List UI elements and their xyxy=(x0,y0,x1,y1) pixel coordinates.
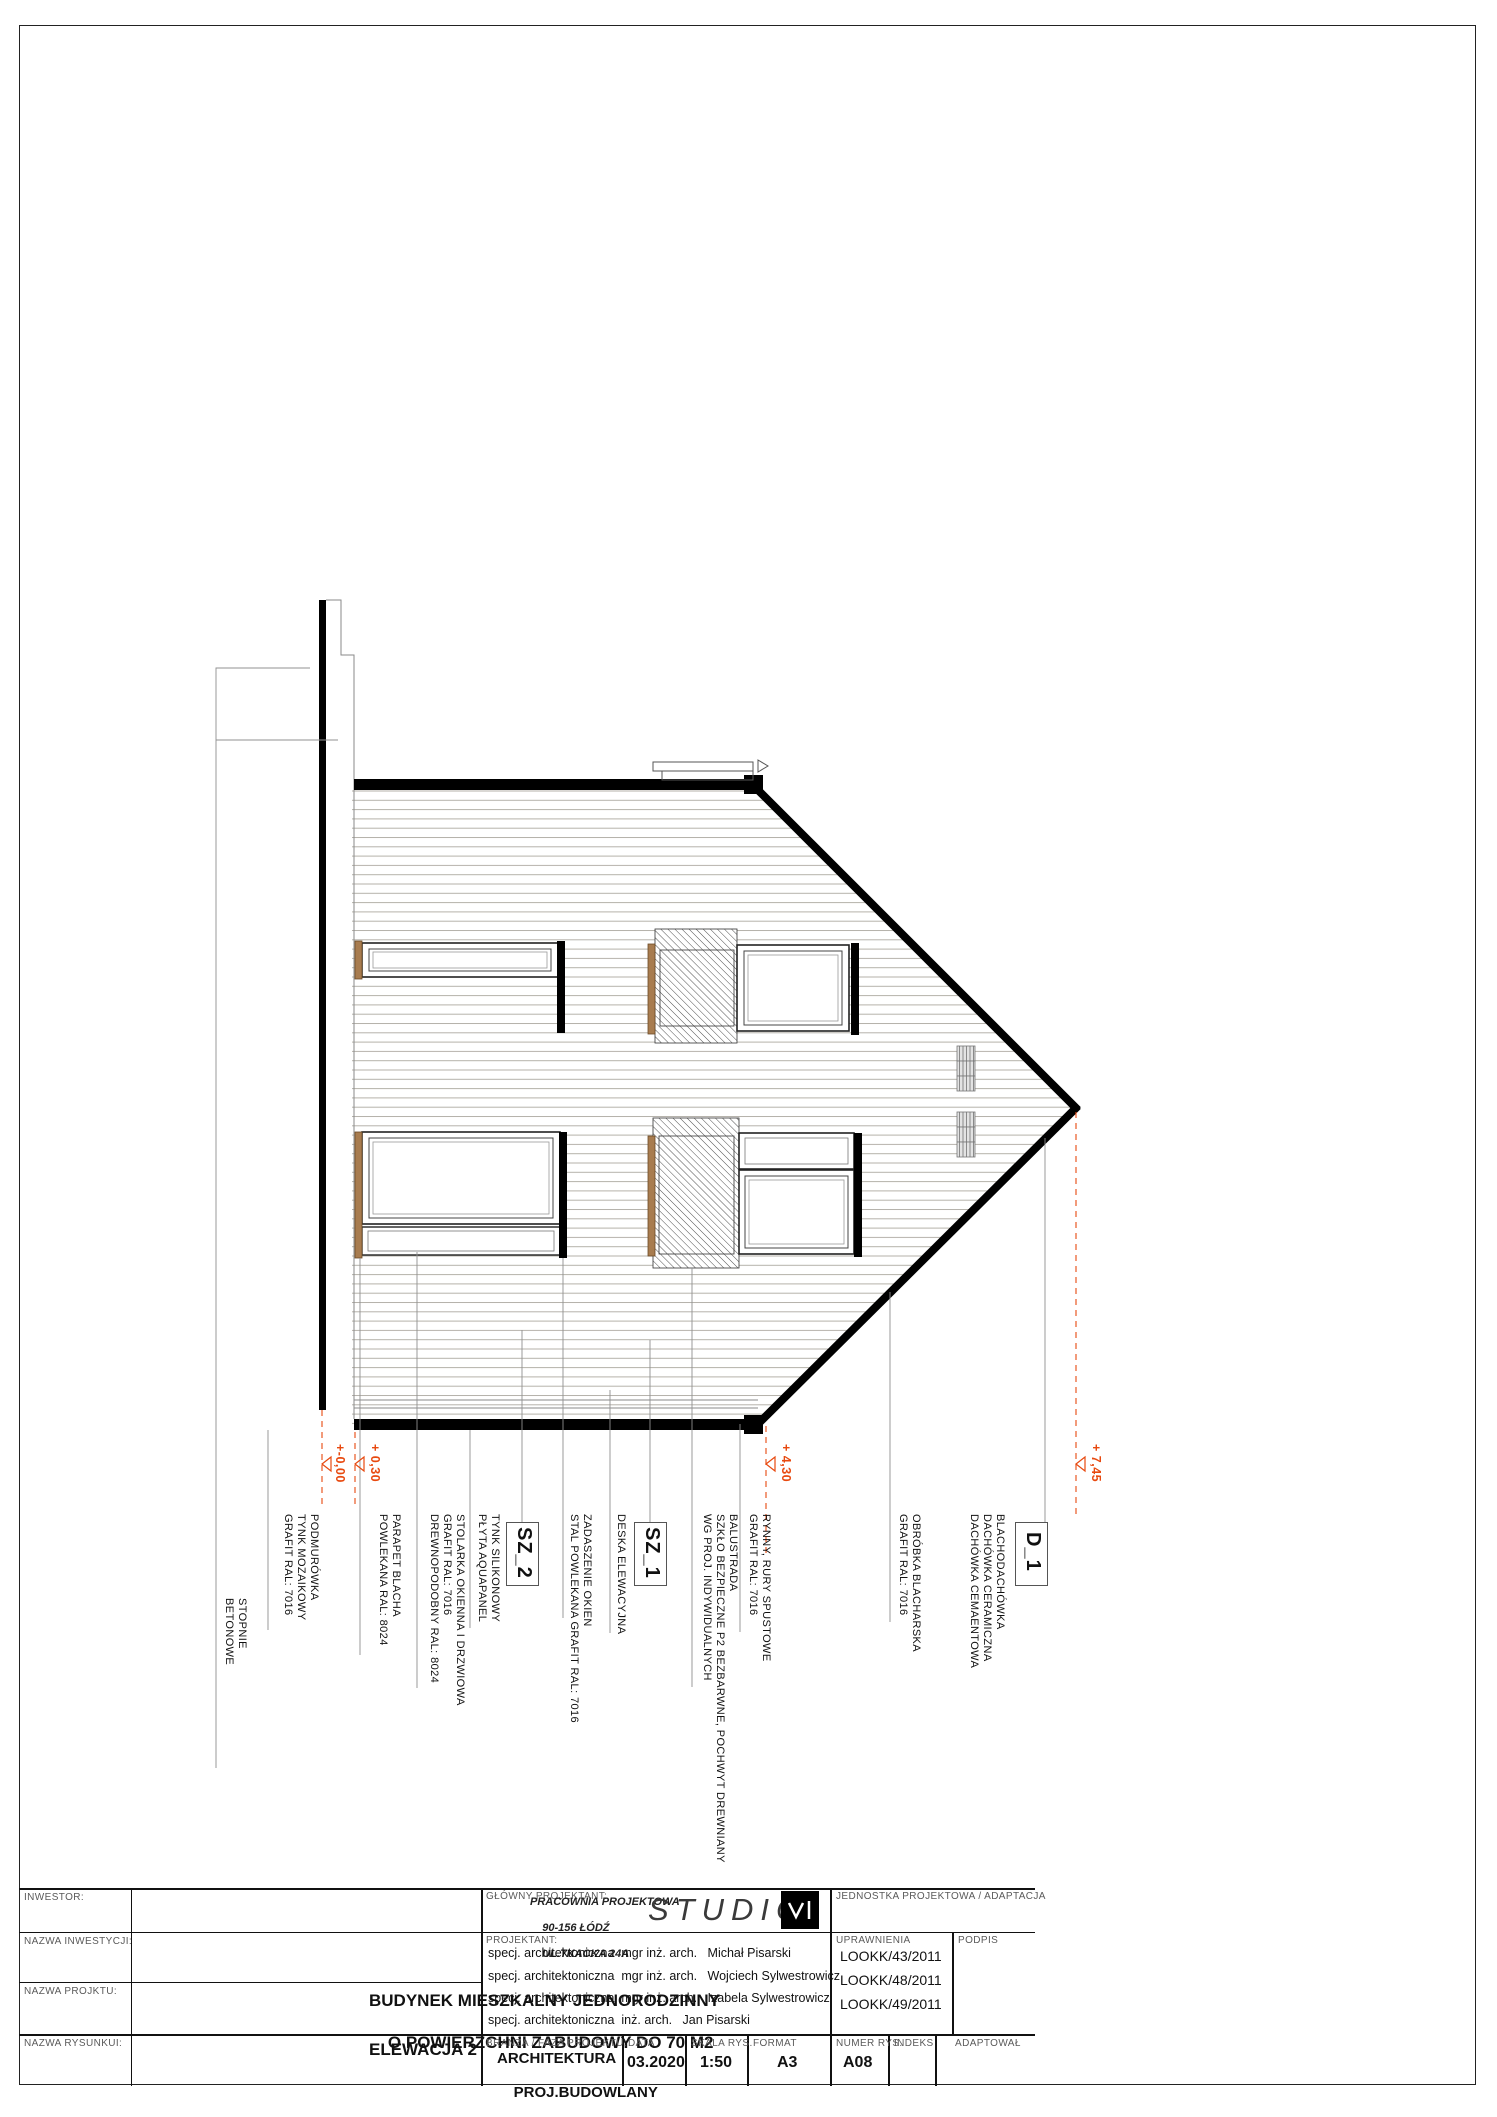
format-label: FORMAT xyxy=(753,2038,797,2049)
label-balustrada: BALUSTRADA SZKŁO BEZPIECZNE P2 BEZBARWNE… xyxy=(700,1514,739,1863)
label-obrobka: OBRÓBKA BLACHARSKA GRAFIT RAL: 7016 xyxy=(896,1514,922,1652)
level-marker-430: + 4,30 xyxy=(779,1444,793,1482)
titleblock-border xyxy=(830,1888,832,2086)
titleblock-border xyxy=(19,1982,481,1983)
titleblock-border xyxy=(935,2034,937,2086)
titleblock-border xyxy=(19,1888,1035,1890)
titleblock-border xyxy=(131,1888,132,2086)
label-tynk: TYNK SILIKONOWY PŁYTA AQUAPANEL xyxy=(475,1514,501,1622)
label-stopnie: STOPNIE BETONOWE xyxy=(222,1598,248,1665)
window-lower-left xyxy=(355,1132,567,1258)
projektant-row: specj. architektoniczna mgr inż. arch. I… xyxy=(488,1991,830,2005)
eave-bar-bottom xyxy=(354,1419,758,1430)
window-lower-right xyxy=(648,1118,862,1268)
format-value: A3 xyxy=(777,2054,797,2072)
level-marker-000: +-0,00 xyxy=(333,1444,347,1483)
canopy-bar xyxy=(854,1133,862,1257)
titleblock-border xyxy=(481,1888,483,2086)
section-mark-d1: D_1 xyxy=(1021,1532,1044,1572)
section-mark-sz2: SZ_2 xyxy=(512,1527,535,1579)
branza-label: BRANŻA / FAZA PROJEKTU: xyxy=(486,2038,627,2049)
nazwa-rysunku-label: NAZWA RYSUNKUI: xyxy=(24,2038,122,2049)
projektant-label: PROJEKTANT: xyxy=(486,1935,557,1946)
studio-logo-mark xyxy=(781,1891,819,1929)
elevation-drawing xyxy=(0,0,1497,2117)
uprawnienia-row: LOOKK/48/2011 xyxy=(840,1968,942,1992)
label-zadaszenie: ZADASZENIE OKIEN STAL POWLEKANA GRAFIT R… xyxy=(567,1514,593,1723)
label-stolarka: STOLARKA OKIENNA I DRZWIOWA GRAFIT RAL: … xyxy=(427,1514,466,1706)
label-deska: DESKA ELEWACYJNA xyxy=(614,1514,627,1634)
titleblock-border xyxy=(19,1932,1035,1933)
level-marker-745: + 7,45 xyxy=(1089,1444,1103,1482)
skala-value: 1:50 xyxy=(700,2054,732,2072)
label-blachodachowka: BLACHODACHÓWKA DACHÓWKA CERAMICZNA DACHÓ… xyxy=(967,1514,1006,1668)
level-marker-030: + 0,30 xyxy=(368,1444,382,1482)
nazwa-inwestycji-label: NAZWA INWESTYCJI: xyxy=(24,1936,132,1947)
data-label: DATA xyxy=(628,2038,655,2049)
balustrade-hatch xyxy=(653,1118,739,1268)
window-upper-right xyxy=(648,929,859,1043)
drawing-sheet: STOPNIE BETONOWE PODMURÓWKA TYNK MOZAIKO… xyxy=(0,0,1497,2117)
titleblock-border xyxy=(952,1932,954,2034)
handrail-wood xyxy=(648,944,655,1034)
label-parapet: PARAPET BLACHA POWLEKANA RAL: 8024 xyxy=(376,1514,402,1646)
numer-label: NUMER RYS. xyxy=(836,2038,903,2049)
uprawnienia-row: LOOKK/43/2011 xyxy=(840,1944,942,1968)
projektant-row: specj. architektoniczna mgr inż. arch. M… xyxy=(488,1946,791,1960)
uprawnienia-row: LOOKK/49/2011 xyxy=(840,1992,942,2016)
indeks-label: INDEKS xyxy=(894,2038,934,2049)
label-podmurowka: PODMURÓWKA TYNK MOZAIKOWY GRAFIT RAL: 70… xyxy=(281,1514,320,1620)
concrete-steps-outline xyxy=(326,600,354,1419)
canopy-bar xyxy=(851,943,859,1035)
label-rynny: RYNNY, RURY SPUSTOWE GRAFIT RAL: 7016 xyxy=(746,1514,772,1662)
jednostka-label: JEDNOSTKA PROJEKTOWA / ADAPTACJA xyxy=(836,1891,1046,1902)
numer-value: A08 xyxy=(843,2054,872,2072)
data-value: 03.2020 xyxy=(627,2054,685,2072)
gable-wall-siding xyxy=(352,789,1077,1429)
inwestor-label: INWESTOR: xyxy=(24,1892,84,1903)
studio-logo-vi-icon xyxy=(781,1891,819,1929)
canopy-bar xyxy=(559,1132,567,1258)
ground-line xyxy=(319,600,326,1410)
projektant-row: specj. architektoniczna inż. arch. Jan P… xyxy=(488,2013,750,2027)
podpis-label: PODPIS xyxy=(958,1935,998,1946)
skala-label: SKALA RYS. xyxy=(691,2038,753,2049)
canopy-bar xyxy=(557,941,565,1033)
eave-bar-top xyxy=(354,779,758,790)
level-marker-triangles xyxy=(322,1457,1085,1471)
handrail-wood xyxy=(355,1132,362,1258)
section-mark-sz1: SZ_1 xyxy=(640,1527,663,1579)
drawing-name: ELEWACJA 2 xyxy=(369,2040,477,2060)
nazwa-projektu-label: NAZWA PROJKTU: xyxy=(24,1986,117,1997)
projektant-row: specj. architektoniczna mgr inż. arch. W… xyxy=(488,1969,840,1983)
adaptowal-label: ADAPTOWAŁ xyxy=(955,2038,1021,2049)
handrail-wood xyxy=(648,1136,655,1256)
handrail-wood xyxy=(355,941,362,979)
